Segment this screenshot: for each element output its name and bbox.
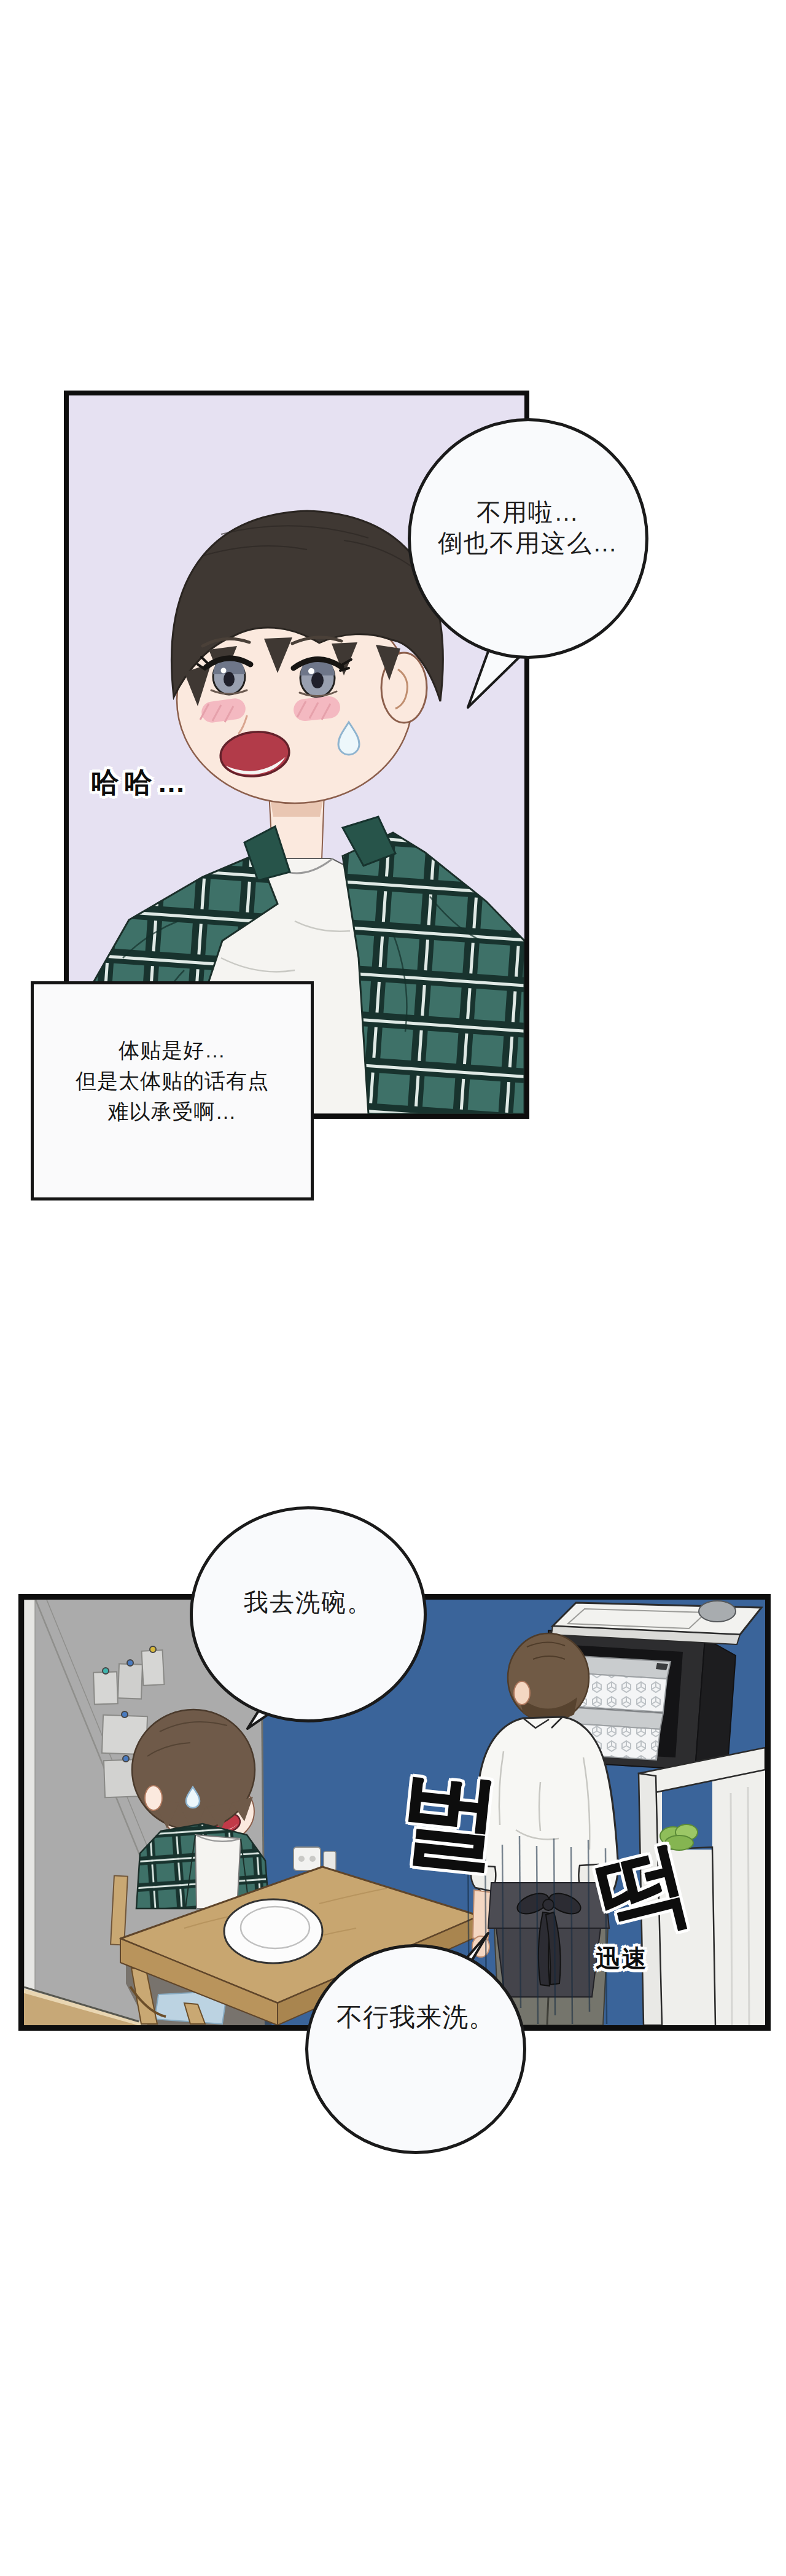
bubble3-text: 不行我来洗。 [337, 2000, 495, 2034]
comic-page: 不用啦… 倒也不用这么… 哈哈… 体贴是好… 但是太体贴的话有点 难以承受啊… [0, 0, 786, 2576]
plate [224, 1899, 322, 1963]
caption-line2: 但是太体贴的话有点 [34, 1065, 311, 1096]
sfx-haha: 哈哈… [91, 764, 190, 802]
sfx-beol: 벌 [391, 1746, 508, 1896]
bubble1-line2: 倒也不用这么… [438, 527, 618, 558]
sfx-xunsu: 迅速 [596, 1942, 648, 1975]
caption-line3: 难以承受啊… [34, 1096, 311, 1127]
bubble2-text: 我去洗碗。 [244, 1586, 373, 1619]
bubble1-line1: 不用啦… [438, 497, 618, 527]
speech-bubble-wash-dishes: 我去洗碗。 [190, 1506, 427, 1722]
caption-box: 体贴是好… 但是太体贴的话有点 难以承受啊… [31, 981, 314, 1200]
speech-bubble-i-will-wash: 不行我来洗。 [305, 1944, 526, 2154]
caption-line1: 体贴是好… [34, 1035, 311, 1065]
speech-bubble-refusal: 不用啦… 倒也不用这么… [408, 418, 648, 659]
